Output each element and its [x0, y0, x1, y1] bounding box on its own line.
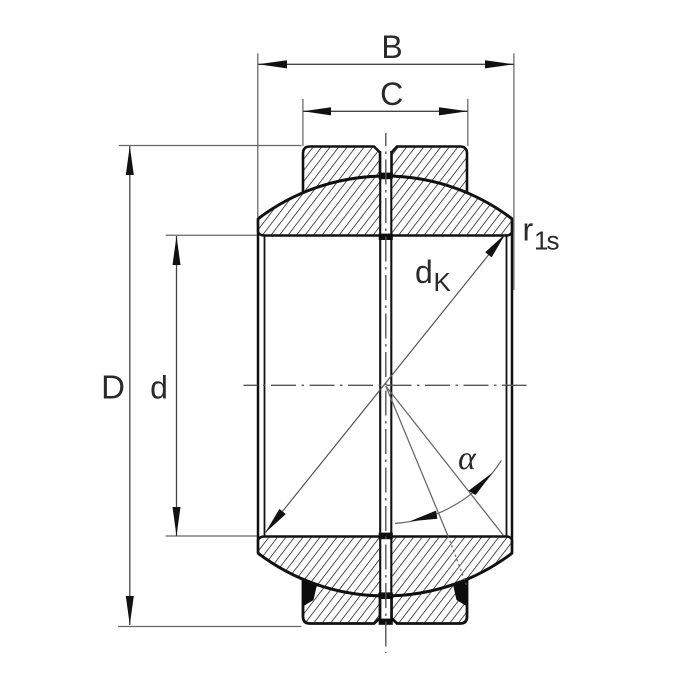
svg-text:d: d [150, 370, 168, 406]
svg-text:B: B [381, 29, 402, 65]
svg-text:α: α [458, 440, 477, 477]
svg-text:d: d [415, 254, 433, 290]
svg-text:1s: 1s [534, 226, 559, 256]
svg-text:D: D [101, 369, 125, 406]
svg-text:r: r [523, 212, 534, 248]
svg-text:C: C [380, 76, 403, 112]
svg-text:K: K [434, 267, 452, 297]
